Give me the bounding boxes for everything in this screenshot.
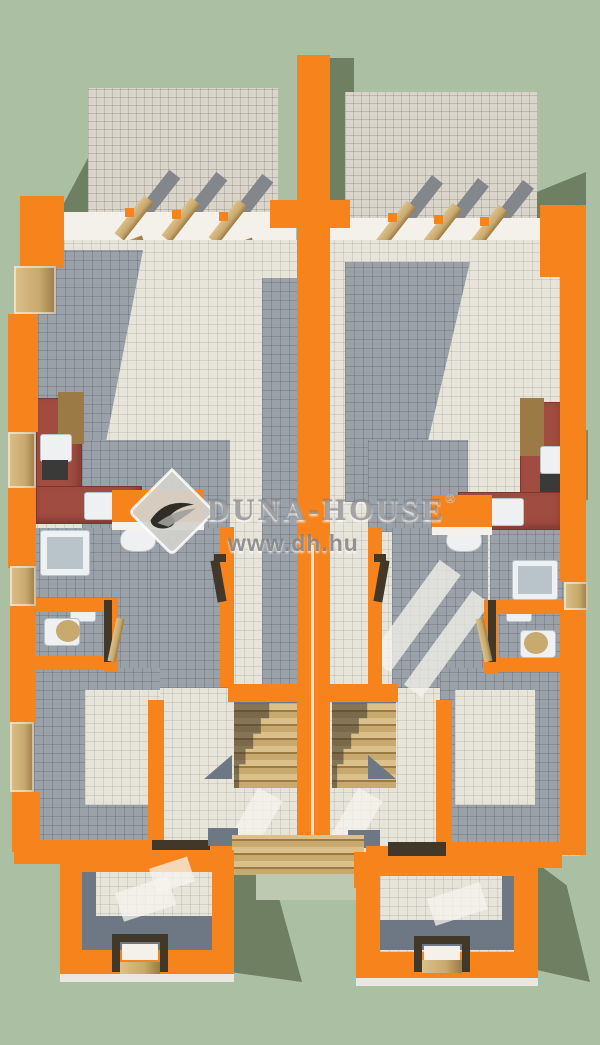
center-pad [256,874,356,900]
beam-bracket [219,212,228,221]
wall-right-3 [560,610,586,855]
hall-center-left [262,278,298,688]
beam-bracket [388,213,397,222]
wall-right-top-corner [540,205,586,277]
window-right-1 [564,582,588,610]
shower-right [512,560,558,600]
beam-bracket [172,210,181,219]
threshold-right-post [414,940,422,972]
threshold-left-post [160,938,168,972]
stairwell-wall-left-vert [220,527,234,687]
bedroom-wall-right [436,700,452,848]
kitchen-wall-left-cap [112,522,204,530]
window-left-1 [14,266,56,314]
bedroom-wall-left [148,700,164,848]
porch-left-platform-side [82,872,96,950]
toilet-left-seat [56,620,80,642]
threshold-right-post [462,940,470,972]
kitchen-wall-right-cap [432,527,492,535]
beam-bracket [125,208,134,217]
stairwell-wall-left-horiz [228,684,300,702]
kitchen-stove-left [42,460,68,480]
beam-bracket [434,215,443,224]
shower-left [40,530,90,576]
wall-left-3 [8,488,36,568]
center-steps [232,835,364,875]
kitchen-wall-right [432,495,492,529]
bath-divider-right-2 [494,658,574,672]
spine-cross-wall [270,200,350,228]
threshold-left-post [112,938,120,972]
stairwell-wall-right-vert [368,527,382,687]
porch-right-platform-side [502,876,514,950]
wall-right-2 [560,277,586,582]
toilet-right-seat [524,632,548,654]
wall-left-2 [8,314,38,432]
wall-left-top-corner [20,196,64,268]
entry-step-right-wood [422,960,462,973]
corridor-left-floor [150,528,230,688]
window-left-2 [8,432,36,488]
floorplan-render: DUNA-HOUSE® www.dh.hu [0,0,600,1045]
window-left-4 [10,722,34,792]
kitchen-wall-left [112,490,204,524]
porch-left-edge [60,974,234,982]
beam-bracket [480,217,489,226]
stairwell-wall-right-horiz [330,684,398,702]
window-left-3 [10,566,36,606]
entry-step-right [424,946,460,960]
bedroom-right-sunpatch [455,690,535,805]
porch-right-ground-shadow [538,864,590,982]
porch-right-edge [356,978,538,986]
entry-step-left [122,944,158,960]
bath-divider-right-1 [494,600,574,614]
party-wall-joint [311,545,314,855]
bath-divider-left-2 [22,656,106,670]
kitchen-sink2-right [488,498,524,526]
kitchen-sink-left [40,434,72,462]
